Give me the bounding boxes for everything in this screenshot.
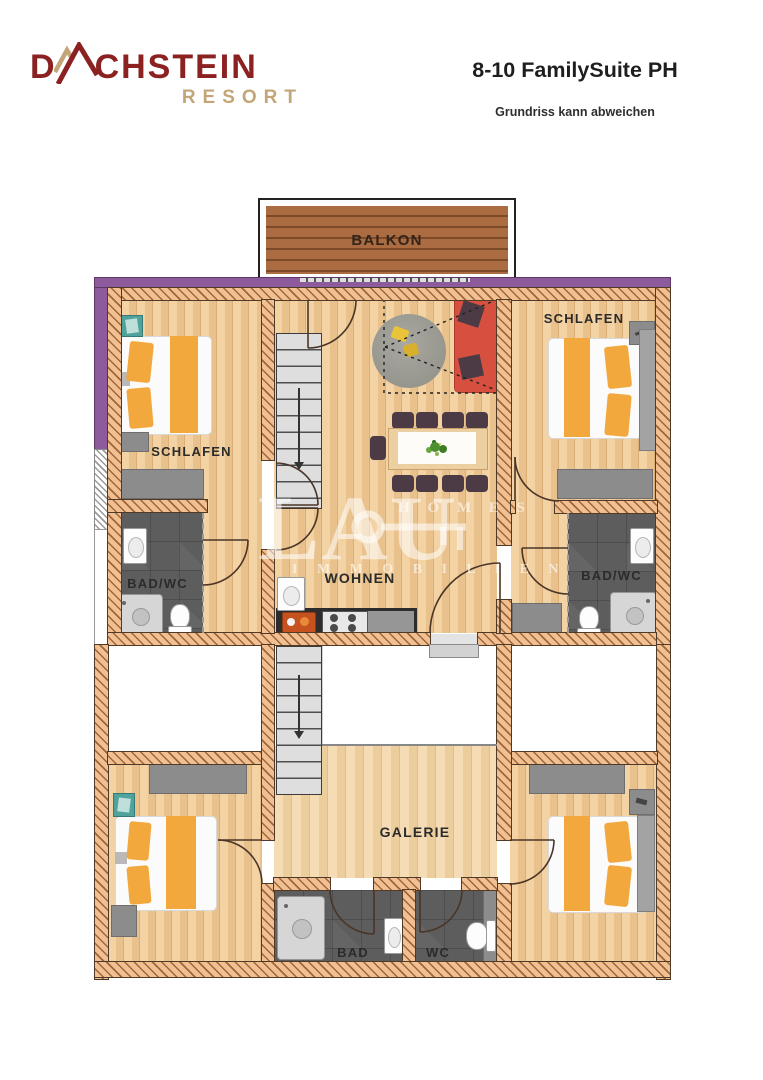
brand-part2: CHSTEIN [95, 50, 258, 84]
shower-head [122, 601, 126, 605]
shower-drain [292, 919, 312, 939]
dining-chair [416, 475, 438, 492]
dining-chair [416, 412, 438, 429]
wardrobe [530, 765, 624, 793]
dining-chair [442, 475, 464, 492]
sink-basin [635, 537, 651, 558]
page-subtitle: Grundriss kann abweichen [425, 105, 725, 119]
wall-right [656, 288, 670, 645]
shower [115, 594, 163, 637]
pillow [604, 345, 632, 389]
pillow [604, 865, 632, 907]
exterior-wall-purple-left [95, 288, 108, 450]
sink-basin [388, 927, 401, 948]
bed-runner [564, 338, 590, 437]
bed-runner [170, 336, 198, 433]
sightline-annotation [383, 295, 499, 395]
dining-chair [466, 475, 488, 492]
pillow [604, 393, 632, 437]
shower-drain [626, 607, 644, 625]
dining-chair [370, 436, 386, 460]
wall-lower-bottom [95, 962, 670, 977]
void-center [322, 645, 499, 746]
burner [348, 624, 356, 632]
balcony-deck: BALKON [266, 206, 508, 274]
bed-headboard [640, 330, 655, 450]
toilet-tank [486, 920, 496, 952]
door-bedroom-right [510, 840, 554, 884]
kitchen-counter-end [368, 611, 414, 633]
wall-galerie-right-upper [497, 645, 511, 840]
room-label-schlafen-right: SCHLAFEN [511, 311, 657, 326]
balcony: BALKON [258, 198, 516, 282]
pillow [126, 821, 151, 861]
bed-runner [166, 816, 196, 909]
toilet [466, 922, 488, 950]
wall-void-right [510, 752, 657, 764]
brand-sub: RESORT [30, 87, 305, 109]
pillow [126, 387, 153, 429]
shower [277, 896, 325, 960]
floorplan-page: D CHSTEIN RESORT 8-10 FamilySuite PH Gru… [0, 0, 763, 1080]
burner [330, 624, 338, 632]
wall-schlafen-bad-right-a [511, 501, 515, 513]
stove [322, 611, 368, 635]
wardrobe [558, 470, 652, 498]
nightstand [122, 316, 142, 336]
shower [610, 592, 657, 636]
door-badwc-right [522, 548, 568, 594]
wall-galerie-left-upper [262, 645, 274, 840]
stairs-down-arrow [294, 731, 304, 739]
exterior-ledge [95, 530, 108, 645]
wall-schlafen-bad-left [108, 500, 207, 512]
room-label-wc: WC [410, 945, 466, 960]
void-left [108, 645, 264, 754]
wardrobe [113, 470, 203, 498]
pillow [604, 821, 632, 863]
tray-item [287, 618, 295, 626]
bed-headboard [638, 816, 654, 911]
door-bedroom-left [218, 840, 262, 884]
wall-galerie-right-lower [497, 884, 511, 962]
door-entrance [430, 563, 500, 633]
wall-wc-top [462, 878, 497, 890]
balcony-door-track [300, 278, 470, 282]
door-balcony [308, 300, 356, 348]
bathroom-sink [630, 528, 654, 564]
wall-lower-right-outer [657, 645, 670, 979]
entrance-threshold [430, 645, 478, 657]
bathroom-sink [384, 918, 403, 954]
deco-paper [117, 797, 131, 812]
page-title: 8-10 FamilySuite PH [425, 58, 725, 83]
brand-logo: D CHSTEIN RESORT [30, 42, 305, 109]
mountain-icon [54, 42, 98, 84]
dining-chair [392, 475, 414, 492]
bed-runner [564, 816, 590, 911]
dresser [112, 906, 136, 936]
door-wc [420, 890, 462, 932]
shower-head [646, 599, 650, 603]
deco-paper [125, 318, 139, 334]
room-label-badwc-left: BAD/WC [110, 576, 205, 591]
exterior-ledge-hatch [95, 450, 108, 530]
dining-chair [392, 412, 414, 429]
wall-lower-left-outer [95, 645, 108, 979]
plant [430, 442, 440, 452]
room-label-badwc-right: BAD/WC [566, 568, 657, 583]
wall-center-left-upper [262, 300, 274, 460]
room-label-wohnen: WOHNEN [295, 570, 425, 586]
wall-center-left-lower [262, 550, 274, 633]
dining-chair [466, 412, 488, 429]
pillow [126, 865, 151, 905]
wardrobe [150, 765, 246, 793]
phone-icon [636, 798, 648, 806]
bed-headboard [115, 852, 127, 864]
burner [348, 614, 356, 622]
wall-top [108, 288, 657, 300]
room-label-galerie: GALERIE [340, 824, 490, 840]
tray-item [300, 617, 309, 626]
nightstand [114, 794, 134, 816]
void-right [510, 645, 659, 754]
room-label-balkon: BALKON [266, 232, 508, 249]
nightstand [630, 790, 654, 814]
room-label-bad: BAD [325, 945, 381, 960]
title-block: 8-10 FamilySuite PH Grundriss kann abwei… [425, 58, 725, 119]
entrance-opening [431, 634, 477, 645]
dining-chair [442, 412, 464, 429]
door-badwc-left [203, 540, 248, 585]
wall-galerie-left-lower [262, 884, 274, 962]
brand-name: D CHSTEIN [30, 42, 305, 84]
sink-basin [283, 586, 300, 606]
door-bad [330, 890, 374, 934]
wall-bad-top-b [374, 878, 420, 890]
wall-void-left [108, 752, 262, 764]
sink-basin [128, 537, 144, 558]
stairs-direction-line [298, 388, 300, 464]
bed [548, 816, 648, 913]
wall-bottom-right [478, 633, 656, 645]
wall-schlafen-bad-right-b [555, 501, 657, 513]
wall-center-right-upper [497, 300, 511, 545]
burner [330, 614, 338, 622]
pillow [126, 341, 154, 383]
galerie-railing [322, 744, 497, 746]
door-schlafen-right [515, 457, 559, 501]
door-hall-left [276, 508, 318, 550]
hallway-cabinet [513, 604, 561, 632]
wall-bottom-left [108, 633, 430, 645]
room-label-schlafen-left: SCHLAFEN [121, 444, 262, 459]
wall-bad-top-a [274, 878, 330, 890]
shower-head [284, 904, 288, 908]
stairs-down-arrow [294, 462, 304, 470]
stairs-direction-line [298, 675, 300, 733]
shower-drain [132, 608, 150, 626]
kitchen-tray [282, 612, 316, 633]
bathroom-sink [123, 528, 147, 564]
